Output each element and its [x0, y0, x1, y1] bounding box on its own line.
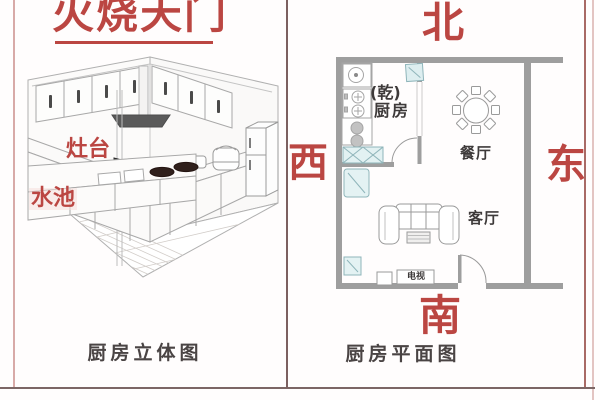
- dining-table: [453, 87, 500, 134]
- iso-caption: 厨房立体图: [60, 344, 230, 363]
- kitchen-pass-through: [417, 82, 422, 136]
- coffee-table: [407, 232, 430, 243]
- compass-south-label: 南: [419, 295, 461, 337]
- dining-room-label: 餐厅: [460, 146, 492, 161]
- floor-plan-drawing: [330, 50, 570, 295]
- compass-east-label: 东: [546, 145, 586, 185]
- stove-symbol: [343, 89, 371, 118]
- sink-label: 水池: [29, 188, 77, 210]
- frame-left-border: [13, 0, 15, 389]
- water-heater-box: [405, 63, 423, 81]
- title-underline: [55, 41, 213, 44]
- kitchen-room-label: 厨房: [374, 103, 410, 119]
- panel-divider: [286, 0, 288, 388]
- side-cabinet: [377, 272, 392, 285]
- frame-bottom-border: [0, 387, 595, 389]
- title-text: 火烧天门: [52, 0, 228, 35]
- tv-label: 电视: [398, 273, 434, 282]
- sofa-set: [379, 204, 459, 244]
- washing-machine: [344, 169, 369, 197]
- screenshot-root: 火烧天门 灶台 水池 北 西 东 南 (乾) 厨房 餐厅 客厅 电视 厨房立体图…: [0, 0, 600, 400]
- living-room-label: 客厅: [468, 211, 500, 226]
- iso-kitchen-drawing: [14, 50, 280, 290]
- plan-caption: 厨房平面图: [318, 345, 488, 364]
- kitchen-counter: [342, 63, 372, 147]
- sink-symbol: [343, 64, 371, 87]
- fridge: [246, 122, 278, 196]
- trigram-label: (乾): [370, 85, 401, 101]
- compass-north-label: 北: [422, 2, 464, 44]
- kitchen-bin-icon: [351, 135, 363, 147]
- stove-label: 灶台: [66, 139, 110, 161]
- corner-cabinet-box: [344, 257, 361, 275]
- compass-west-label: 西: [288, 143, 328, 183]
- frame-right-outer-border: [592, 0, 594, 400]
- kitchen-bin-icon: [351, 122, 363, 134]
- kitchen-door: [392, 136, 422, 164]
- frame-right-border: [584, 0, 586, 389]
- entrance-door: [458, 255, 486, 283]
- hatched-counter: [343, 147, 383, 163]
